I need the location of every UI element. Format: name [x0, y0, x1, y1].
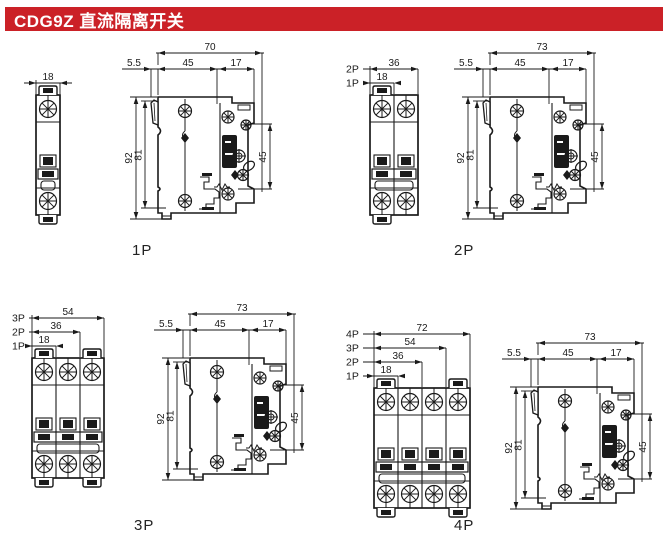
case-rivet-icon: [270, 431, 281, 442]
dim-label: 45: [290, 412, 301, 424]
dim-label: 17: [562, 58, 574, 69]
dim-label: 81: [466, 149, 477, 161]
dim-label: 18: [380, 365, 392, 376]
case-rivet-icon: [621, 410, 631, 420]
dim-label: 2P: [346, 357, 359, 369]
case-rivet-icon: [273, 381, 283, 391]
dim-label: 1P: [346, 371, 359, 383]
dim-label: 81: [134, 149, 145, 161]
case-rivet-icon: [241, 120, 251, 130]
dim-label: 3P: [12, 313, 25, 325]
case-rivet-icon: [570, 170, 581, 181]
terminal-screw-icon: [398, 193, 415, 210]
terminal-screw-icon: [374, 193, 391, 210]
terminal-screw-icon: [402, 486, 419, 503]
front-view-3p: [32, 349, 104, 487]
front-view-2p: [370, 86, 418, 224]
figure-label-2p: 2P: [454, 242, 474, 259]
dim-label: 2P: [12, 327, 25, 339]
dim-label: 45: [258, 151, 269, 163]
case-rivet-icon: [254, 372, 266, 384]
case-rivet-icon: [238, 170, 249, 181]
terminal-screw-icon: [398, 101, 415, 118]
dim-label: 5.5: [459, 58, 473, 69]
case-rivet-icon: [511, 195, 524, 208]
dim-label: 73: [584, 332, 596, 343]
terminal-screw-icon: [450, 394, 467, 411]
dim-label: 17: [610, 348, 622, 359]
side-view-2p: [483, 97, 588, 219]
case-rivet-icon: [554, 188, 566, 200]
terminal-screw-icon: [84, 456, 101, 473]
terminal-screw-icon: [60, 364, 77, 381]
front-view-1p: [36, 86, 60, 224]
dim-label: 81: [514, 439, 525, 451]
dim-label: 54: [404, 337, 416, 348]
dim-label: 36: [388, 58, 400, 69]
case-outline: [490, 97, 586, 219]
case-outline: [190, 358, 286, 480]
section-title: CDG9Z 直流隔离开关: [5, 7, 184, 32]
dim-label: 5.5: [507, 348, 521, 359]
case-rivet-icon: [573, 120, 583, 130]
terminal-screw-icon: [84, 364, 101, 381]
case-rivet-icon: [559, 485, 572, 498]
figure-4p: 4P723P542P361P18735.54517928145: [334, 300, 668, 550]
drawing-3p: 3P542P361P18735.54517928145: [0, 300, 334, 550]
case-rivet-icon: [559, 395, 572, 408]
figure-3p: 3P542P361P18735.54517928145: [0, 300, 334, 550]
case-rivet-icon: [618, 460, 629, 471]
dim-label: 45: [214, 319, 226, 330]
dim-label: 4P: [346, 329, 359, 341]
front-dimensions-4p: 4P723P542P361P18: [346, 323, 470, 387]
terminal-screw-icon: [40, 193, 57, 210]
dim-label: 73: [536, 42, 548, 53]
case-rivet-icon: [254, 449, 266, 461]
section-header: CDG9Z 直流隔离开关: [5, 7, 663, 31]
figure-1p: 18705.54517928145: [0, 36, 334, 260]
dim-label: 18: [38, 335, 50, 346]
case-rivet-icon: [511, 105, 524, 118]
side-view-1p: [151, 97, 256, 219]
figure-label-4p: 4P: [454, 517, 474, 534]
terminal-screw-icon: [426, 486, 443, 503]
front-view-4p: [374, 379, 470, 517]
figure-label-1p: 1P: [132, 242, 152, 259]
dim-label: 45: [182, 58, 194, 69]
terminal-screw-icon: [378, 394, 395, 411]
terminal-screw-icon: [374, 101, 391, 118]
terminal-screw-icon: [36, 456, 53, 473]
dim-label: 17: [262, 319, 274, 330]
catalog-page: CDG9Z 直流隔离开关 18705.54517928145 2P361P187…: [0, 0, 668, 550]
case-rivet-icon: [602, 401, 614, 413]
dim-label: 72: [416, 323, 428, 334]
dim-label: 73: [236, 303, 248, 314]
dim-label: 45: [638, 441, 649, 453]
dim-label: 1P: [12, 341, 25, 353]
terminal-screw-icon: [402, 394, 419, 411]
side-view-3p: [183, 358, 288, 480]
dim-label: 1P: [346, 78, 359, 90]
drawing-1p: 18705.54517928145: [0, 36, 334, 260]
case-rivet-icon: [222, 188, 234, 200]
terminal-screw-icon: [426, 394, 443, 411]
case-rivet-icon: [179, 195, 192, 208]
dim-label: 17: [230, 58, 242, 69]
case-rivet-icon: [602, 478, 614, 490]
case-outline: [538, 387, 634, 509]
dim-label: 36: [50, 321, 62, 332]
dim-label: 81: [166, 410, 177, 422]
dim-label: 36: [392, 351, 404, 362]
dim-label: 18: [42, 72, 54, 83]
dim-label: 45: [514, 58, 526, 69]
case-rivet-icon: [222, 111, 234, 123]
drawing-4p: 4P723P542P361P18735.54517928145: [334, 300, 668, 550]
figure-2p: 2P361P18735.54517928145: [334, 36, 668, 260]
case-outline: [158, 97, 254, 219]
case-rivet-icon: [179, 105, 192, 118]
dim-label: 5.5: [127, 58, 141, 69]
drawing-2p: 2P361P18735.54517928145: [334, 36, 668, 260]
terminal-screw-icon: [60, 456, 77, 473]
dim-label: 45: [590, 151, 601, 163]
dim-label: 45: [562, 348, 574, 359]
terminal-screw-icon: [36, 364, 53, 381]
terminal-screw-icon: [40, 101, 57, 118]
side-view-4p: [531, 387, 636, 509]
dim-label: 18: [376, 72, 388, 83]
dim-label: 2P: [346, 64, 359, 76]
terminal-screw-icon: [378, 486, 395, 503]
case-rivet-icon: [211, 456, 224, 469]
dim-label: 3P: [346, 343, 359, 355]
figure-label-3p: 3P: [134, 517, 154, 534]
case-rivet-icon: [554, 111, 566, 123]
dim-label: 5.5: [159, 319, 173, 330]
dim-label: 70: [204, 42, 216, 53]
dim-label: 54: [62, 307, 74, 318]
case-rivet-icon: [211, 366, 224, 379]
terminal-screw-icon: [450, 486, 467, 503]
